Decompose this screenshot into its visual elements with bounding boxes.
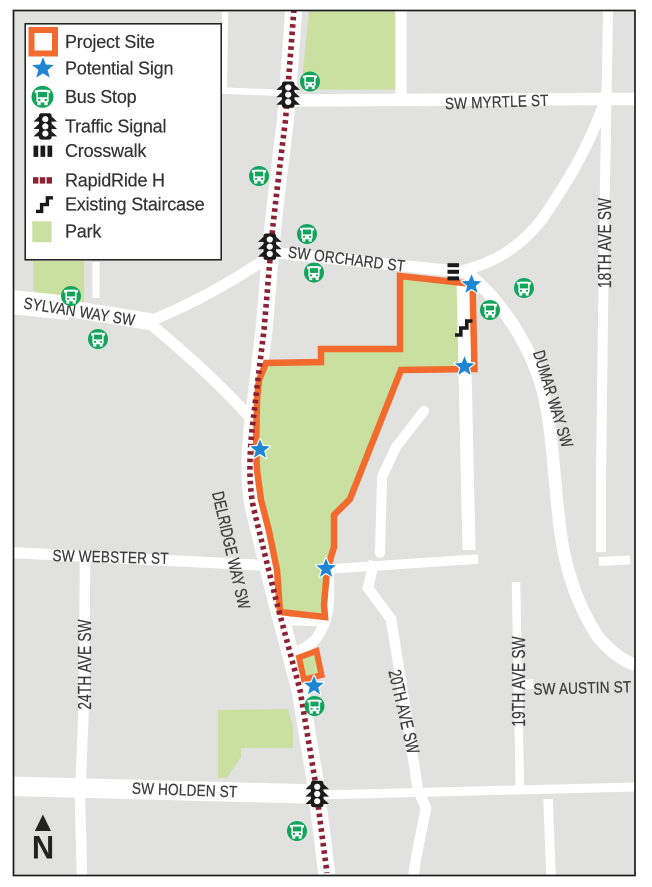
svg-text:Potential Sign: Potential Sign bbox=[65, 59, 173, 79]
svg-text:Crosswalk: Crosswalk bbox=[65, 141, 147, 161]
svg-text:Project Site: Project Site bbox=[65, 32, 155, 52]
svg-text:SW AUSTIN ST: SW AUSTIN ST bbox=[533, 678, 631, 699]
svg-text:19TH AVE SW: 19TH AVE SW bbox=[509, 636, 529, 727]
svg-text:18TH AVE SW: 18TH AVE SW bbox=[595, 197, 615, 288]
svg-text:SW HOLDEN ST: SW HOLDEN ST bbox=[132, 780, 238, 802]
svg-text:N: N bbox=[32, 829, 54, 866]
svg-text:Existing Staircase: Existing Staircase bbox=[65, 194, 205, 214]
svg-text:24TH AVE SW: 24TH AVE SW bbox=[75, 619, 95, 710]
svg-text:RapidRide H: RapidRide H bbox=[65, 170, 165, 190]
svg-text:SW WEBSTER ST: SW WEBSTER ST bbox=[52, 547, 169, 568]
svg-text:SW MYRTLE ST: SW MYRTLE ST bbox=[445, 92, 549, 114]
svg-text:Bus Stop: Bus Stop bbox=[65, 87, 137, 107]
svg-text:Traffic Signal: Traffic Signal bbox=[65, 116, 166, 136]
svg-text:Park: Park bbox=[65, 222, 102, 242]
